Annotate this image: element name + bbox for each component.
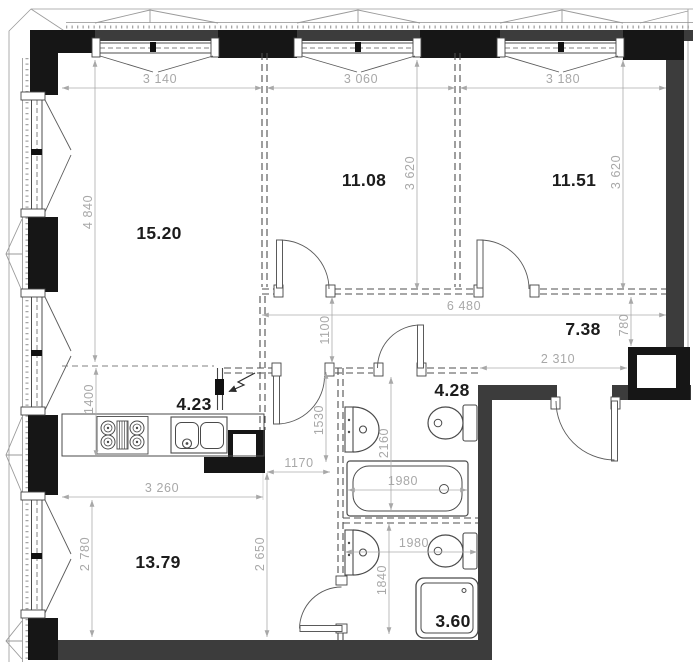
room-area-bedroom1: 11.08 bbox=[342, 170, 386, 190]
dim-label-tub-w: 1980 bbox=[388, 474, 418, 488]
room-area-hallway: 7.38 bbox=[565, 319, 600, 339]
room-area-living: 15.20 bbox=[136, 223, 181, 243]
room-area-bedroom2: 11.51 bbox=[552, 170, 596, 190]
dim-label-living-h: 4 840 bbox=[81, 195, 95, 229]
dimension-lines bbox=[62, 60, 666, 637]
sink-icon bbox=[345, 407, 379, 452]
dim-label-w1: 3 140 bbox=[143, 72, 177, 86]
wall-piers bbox=[28, 30, 684, 660]
floor-plan-page: 3 140 3 060 3 180 4 840 3 620 3 620 6 48… bbox=[0, 0, 693, 663]
electrical-panel bbox=[215, 373, 255, 395]
dim-label-corr-l: 1530 bbox=[312, 405, 326, 435]
dim-label-bath1-d: 2160 bbox=[377, 428, 391, 458]
door-bedroom1 bbox=[277, 240, 330, 289]
dim-label-entry-w: 2 310 bbox=[541, 352, 575, 366]
room-area-kitchen: 4.23 bbox=[176, 394, 211, 414]
door-entrance bbox=[556, 401, 618, 461]
dim-label-bath2-d: 1840 bbox=[375, 565, 389, 595]
floor-plan-drawing: 3 140 3 060 3 180 4 840 3 620 3 620 6 48… bbox=[0, 0, 693, 663]
lightning-bolt-icon bbox=[229, 373, 255, 392]
bathroom1-fixtures bbox=[345, 405, 477, 516]
toilet-icon bbox=[428, 405, 477, 441]
dim-label-room3-hr: 2 650 bbox=[253, 537, 267, 571]
dim-label-bath2-w: 1980 bbox=[399, 536, 429, 550]
dim-label-hall-h: 1100 bbox=[318, 315, 332, 344]
stove-icon bbox=[97, 417, 148, 455]
dim-label-hall-w: 6 480 bbox=[447, 299, 481, 313]
room-area-bathroom1: 4.28 bbox=[434, 380, 469, 400]
dim-label-b2-h: 3 620 bbox=[609, 155, 623, 189]
room-area-bathroom2: 3.60 bbox=[435, 611, 470, 631]
dim-label-corr-w: 1170 bbox=[284, 456, 313, 470]
toilet-icon bbox=[428, 533, 477, 569]
dim-label-w2: 3 060 bbox=[344, 72, 378, 86]
sink-icon bbox=[345, 530, 379, 575]
bathtub-icon bbox=[347, 461, 468, 516]
balcony-railing bbox=[23, 23, 693, 663]
dim-label-kitchen-w: 3 260 bbox=[145, 481, 179, 495]
ventilation-shaft-kitchen bbox=[204, 430, 265, 473]
room-area-room3: 13.79 bbox=[135, 552, 180, 572]
ventilation-shaft-entry bbox=[628, 347, 690, 400]
dim-label-kitchen-d: 1400 bbox=[82, 384, 96, 414]
electrical-panel-icon bbox=[215, 379, 224, 395]
door-bedroom2 bbox=[477, 240, 529, 289]
dim-label-w3: 3 180 bbox=[546, 72, 580, 86]
dim-label-b1-h: 3 620 bbox=[403, 156, 417, 190]
dim-label-room3-hl: 2 780 bbox=[78, 537, 92, 571]
dim-label-entry-d: 780 bbox=[617, 314, 631, 337]
door-bathroom1 bbox=[378, 325, 424, 368]
kitchen-sink-icon bbox=[171, 417, 227, 453]
